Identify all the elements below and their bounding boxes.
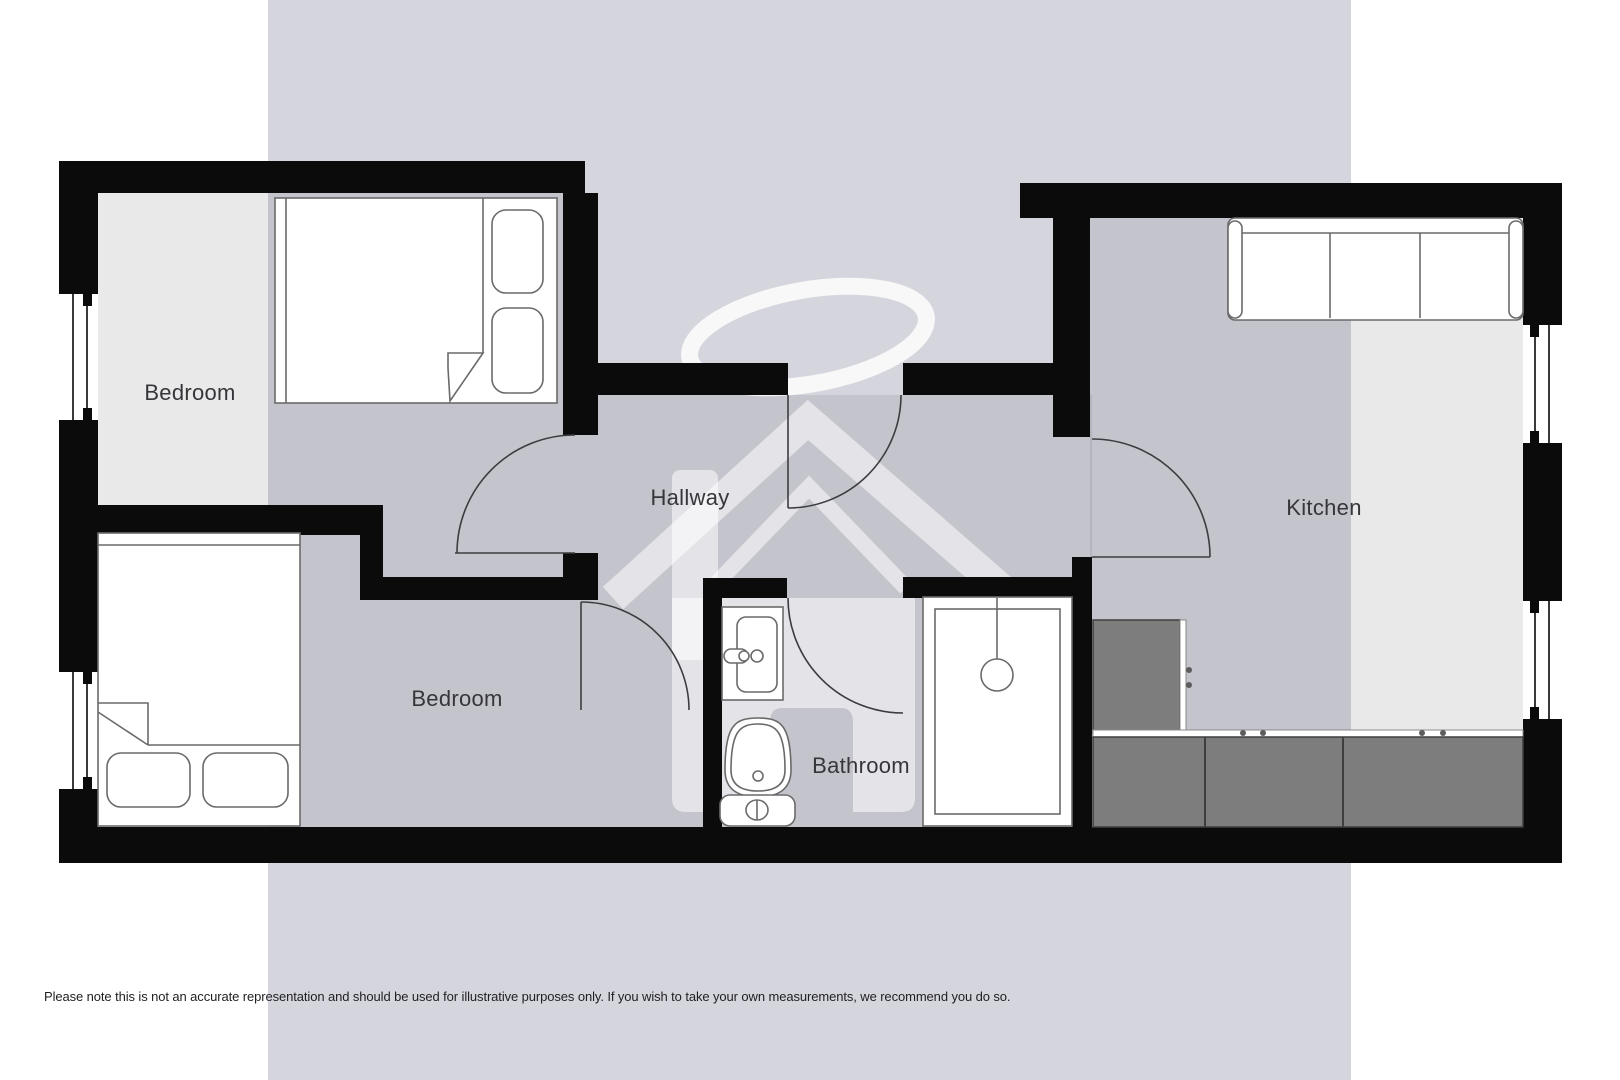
wall-right-lower — [1523, 719, 1562, 837]
wall-bathroom-left — [703, 578, 722, 827]
room-label-kitchen: Kitchen — [1286, 495, 1361, 520]
window — [59, 672, 98, 789]
sink-icon — [722, 607, 783, 700]
window — [1523, 601, 1562, 719]
window — [1523, 325, 1562, 443]
room-label-bedroom-bottom: Bedroom — [411, 686, 502, 711]
wall-bottom — [59, 827, 1562, 863]
wall-right-middle — [1523, 443, 1562, 601]
wall-bathroom-header — [703, 578, 787, 598]
wall-kitchen-top — [1020, 183, 1562, 218]
room-label-bathroom: Bathroom — [812, 753, 910, 778]
toilet-icon — [720, 718, 795, 826]
wall-right-upper — [1523, 183, 1562, 325]
wall-left-upper — [59, 161, 98, 294]
floor-plan: Bedroom Bedroom Hallway Bathroom Kitchen — [0, 0, 1620, 1080]
disclaimer-text: Please note this is not an accurate repr… — [44, 989, 1144, 1004]
wall-bedroom-divider — [59, 505, 383, 535]
wall-bedroom2-stub — [563, 553, 598, 600]
room-label-hallway: Hallway — [650, 485, 729, 510]
sofa-arm — [1228, 221, 1242, 318]
wall-hallway-top-right — [903, 363, 1056, 395]
wall-hallway-top-left — [563, 363, 788, 395]
shower-icon — [923, 597, 1072, 826]
wall-kitchen-left — [1053, 183, 1090, 437]
pillow — [492, 210, 543, 293]
sofa-icon — [1228, 218, 1523, 320]
wall-left-middle — [59, 420, 98, 672]
wall-top-left-block — [59, 161, 585, 193]
bed-icon — [98, 533, 300, 826]
pillow — [492, 308, 543, 393]
bed-icon — [275, 198, 557, 403]
wall-bedroom2-top — [360, 577, 598, 600]
sofa-arm — [1509, 221, 1523, 318]
pillow — [107, 753, 190, 807]
wall-bedroom1-right — [563, 193, 598, 435]
window — [59, 294, 98, 420]
pillow — [203, 753, 288, 807]
room-label-bedroom-top: Bedroom — [144, 380, 235, 405]
wall-shower-header — [903, 577, 1092, 598]
